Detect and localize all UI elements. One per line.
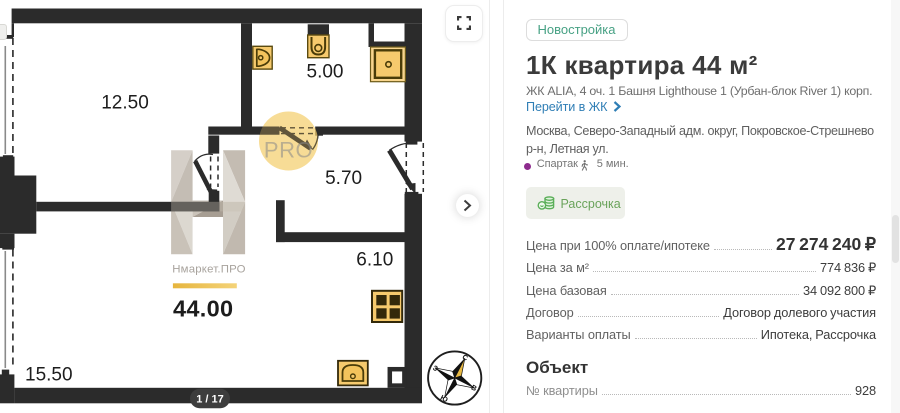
svg-text:1 / 17: 1 / 17: [196, 393, 224, 405]
svg-text:5.70: 5.70: [325, 168, 362, 189]
svg-text:15.50: 15.50: [25, 365, 73, 386]
svg-text:Нмаркет.ПРО: Нмаркет.ПРО: [172, 263, 246, 275]
svg-text:44.00: 44.00: [173, 296, 233, 322]
svg-text:5.00: 5.00: [307, 62, 344, 83]
svg-text:6.10: 6.10: [356, 249, 393, 270]
svg-text:12.50: 12.50: [101, 93, 149, 114]
svg-text:PRO: PRO: [264, 138, 313, 163]
